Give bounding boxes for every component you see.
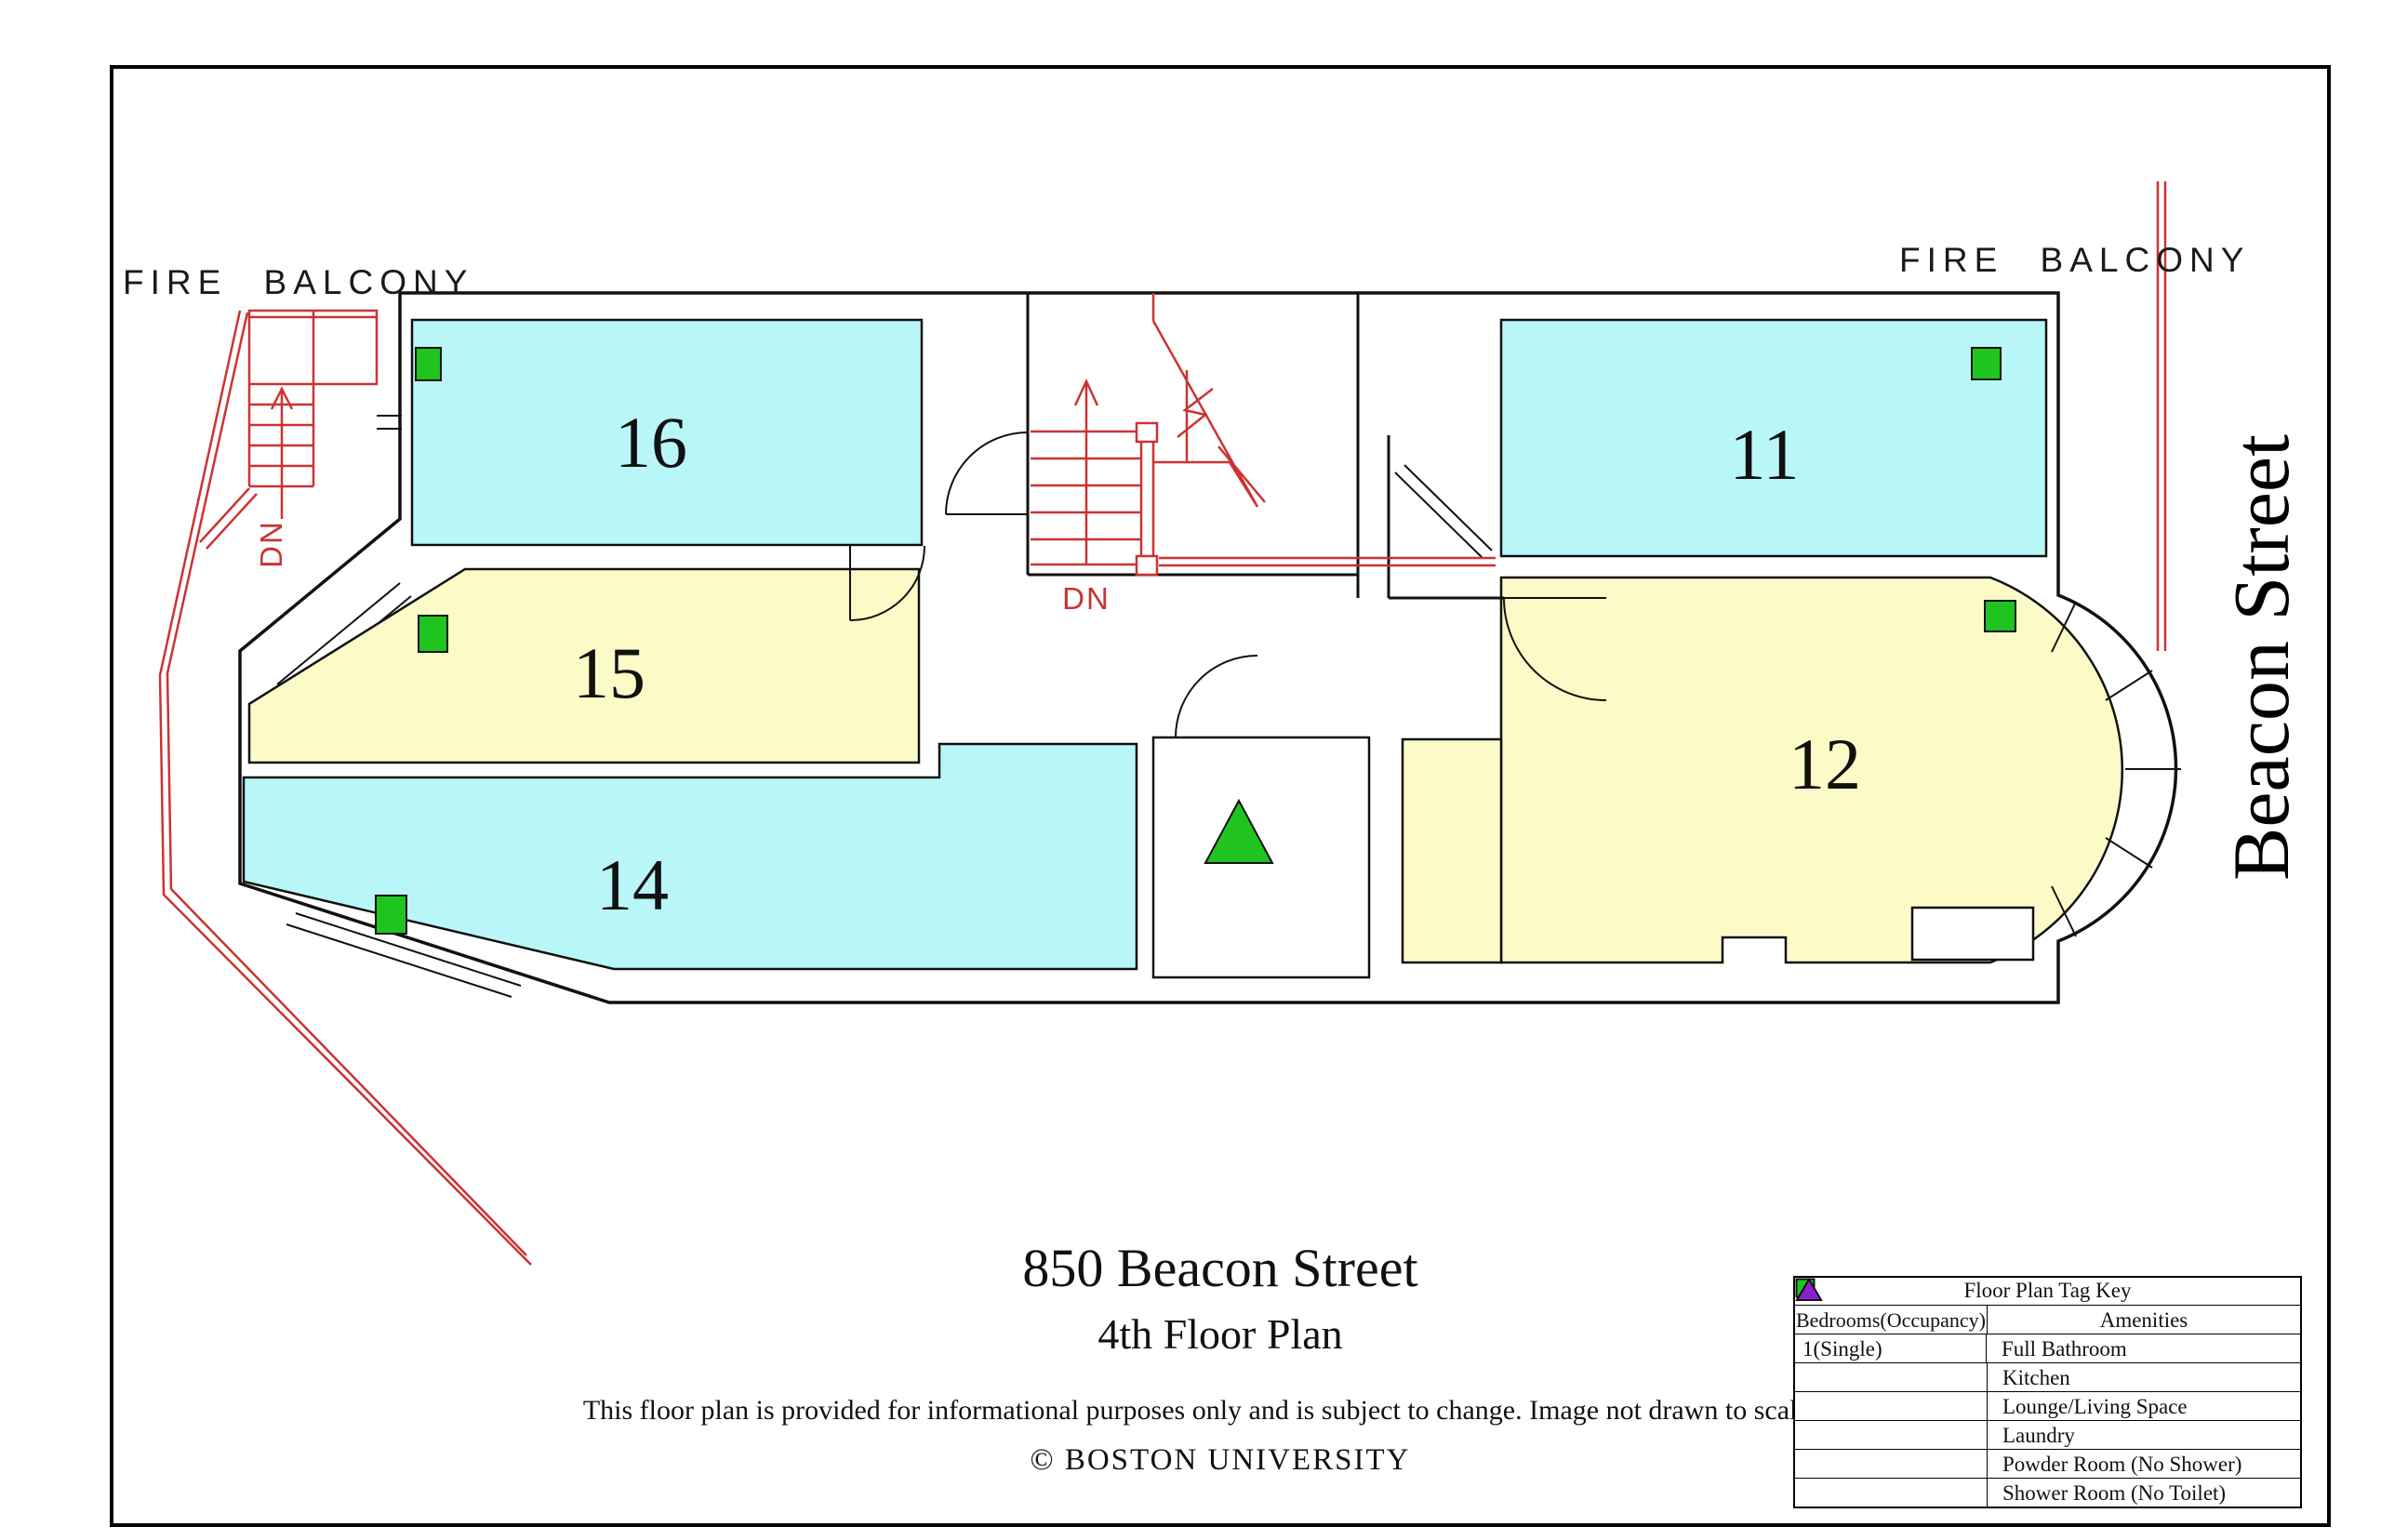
legend-amenity-label: Full Bathroom [2002,1335,2127,1362]
fire-balcony-label-right: FIRE BALCONY [1899,241,2250,279]
legend-amenity-label: Laundry [2002,1422,2075,1449]
legend-row: Laundry [1795,1420,2300,1449]
room-14 [244,744,1137,969]
legend-col-bedrooms: Bedrooms(Occupancy) [1795,1306,1988,1334]
bedroom-tag-12 [1985,601,2015,631]
bedroom-tag-15 [419,616,447,652]
street-label: Beacon Street [2216,434,2306,881]
legend-row: Kitchen [1795,1362,2300,1391]
legend-amenity-label: Kitchen [2002,1364,2070,1391]
bedroom-tag-11 [1972,348,2001,379]
legend-row: Powder Room (No Shower) [1795,1449,2300,1478]
room-label-12: 12 [1789,724,1861,804]
bedroom-tag-16 [416,348,441,380]
legend-row: Shower Room (No Toilet) [1795,1478,2300,1507]
floor-plan-tag-key: Floor Plan Tag Key Bedrooms(Occupancy) A… [1793,1276,2302,1508]
legend-row: Lounge/Living Space [1795,1391,2300,1420]
dn-label-center: DN [1062,581,1111,616]
fire-escape-stairs-left [249,311,377,519]
room-label-14: 14 [596,844,669,925]
legend-title: Floor Plan Tag Key [1795,1278,2300,1305]
room-12-alcove [1403,739,1501,962]
fire-balcony-label-left: FIRE BALCONY [123,263,473,301]
bay-window-seat [1912,908,2033,960]
room-label-15: 15 [573,632,645,713]
bedroom-tag-14 [376,896,406,934]
fire-escape-connector [377,416,402,429]
legend-col-amenities: Amenities [1988,1306,2300,1334]
floor-plan-sheet: DN DN [0,0,2381,1540]
shower-room-icon [1795,1278,1823,1302]
room-label-11: 11 [1729,414,1799,495]
legend-amenity-label: Lounge/Living Space [2002,1393,2188,1420]
legend-amenity-label: Shower Room (No Toilet) [2002,1480,2226,1507]
room-label-16: 16 [615,402,687,483]
legend-bedroom-label: 1(Single) [1802,1335,1882,1362]
legend-amenity-label: Powder Room (No Shower) [2002,1451,2241,1478]
legend-row: 1(Single) Full Bathroom [1795,1334,2300,1362]
legend-column-headers: Bedrooms(Occupancy) Amenities [1795,1305,2300,1334]
dn-label-left: DN [254,520,288,568]
